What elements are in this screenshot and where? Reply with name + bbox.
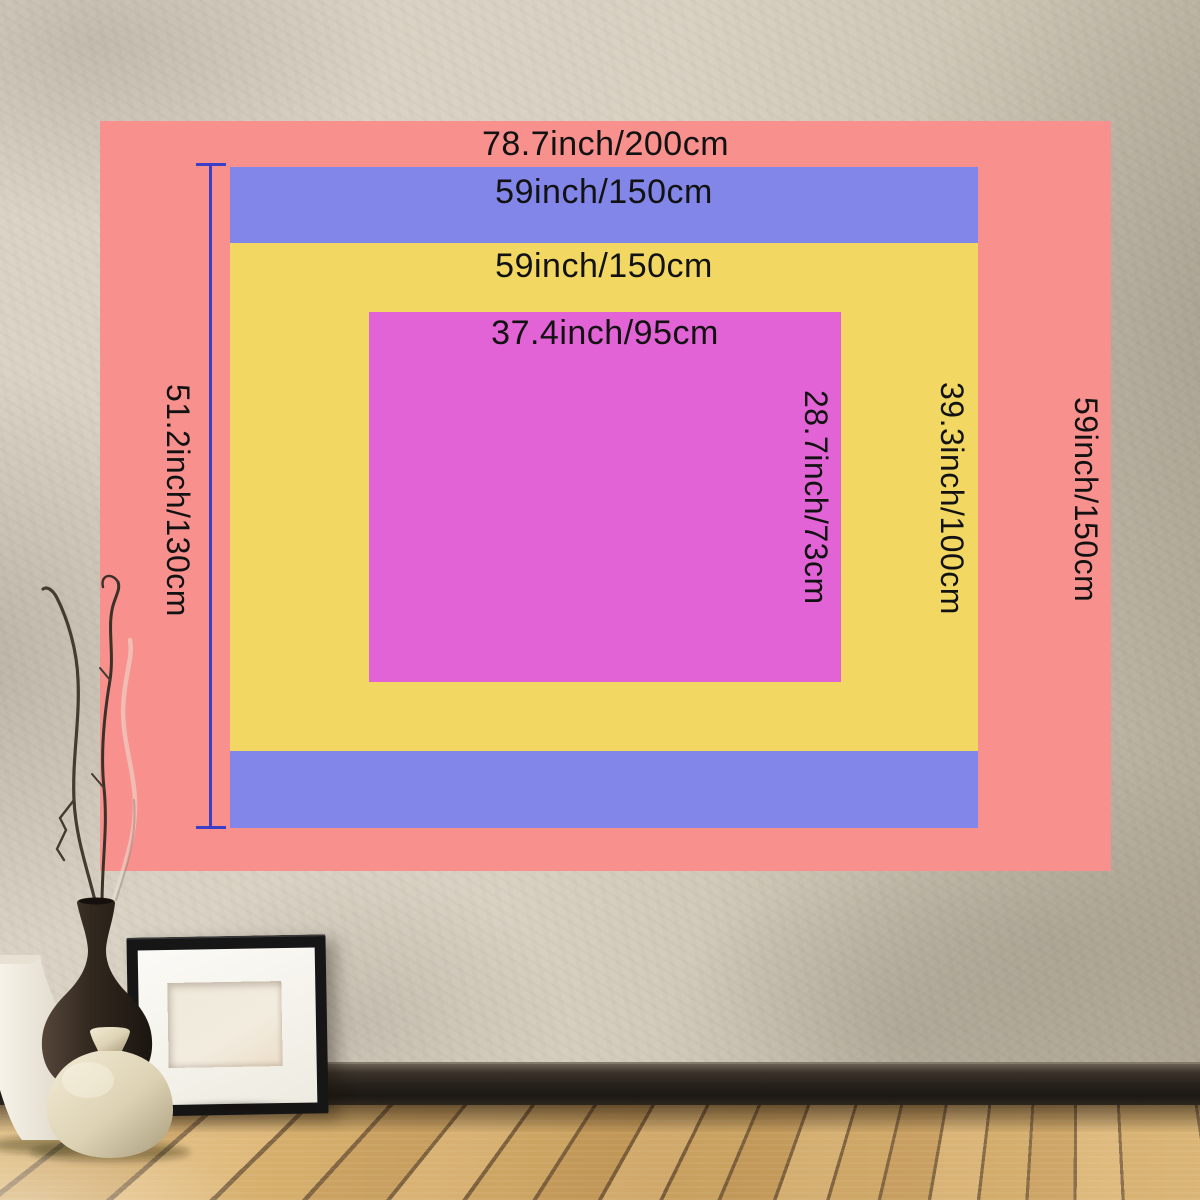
- frame-shadow: [138, 1100, 343, 1114]
- picture-frame: [126, 934, 328, 1116]
- label-height-100cm: 39.3inch/100cm: [932, 330, 972, 666]
- dimension-line-cap-top: [196, 163, 226, 166]
- label-width-150cm-blue: 59inch/150cm: [230, 167, 978, 217]
- label-height-150cm: 59inch/150cm: [1066, 330, 1106, 670]
- label-width-200cm: 78.7inch/200cm: [100, 121, 1111, 167]
- frame-opening: [167, 981, 282, 1068]
- label-width-95cm: 37.4inch/95cm: [369, 312, 841, 354]
- tapestry-size-chart-scene: 78.7inch/200cm 59inch/150cm 59inch/150cm…: [0, 0, 1200, 1200]
- frame-mat: [138, 947, 318, 1105]
- dimension-line-cap-bottom: [196, 826, 226, 829]
- label-height-130cm: 51.2inch/130cm: [158, 340, 198, 660]
- wood-floor: [0, 1105, 1200, 1200]
- height-dimension-line: [209, 164, 212, 829]
- label-width-150cm-yellow: 59inch/150cm: [230, 243, 978, 290]
- label-height-73cm: 28.7inch/73cm: [796, 337, 836, 657]
- tapestry-size-s-rect: [369, 312, 841, 682]
